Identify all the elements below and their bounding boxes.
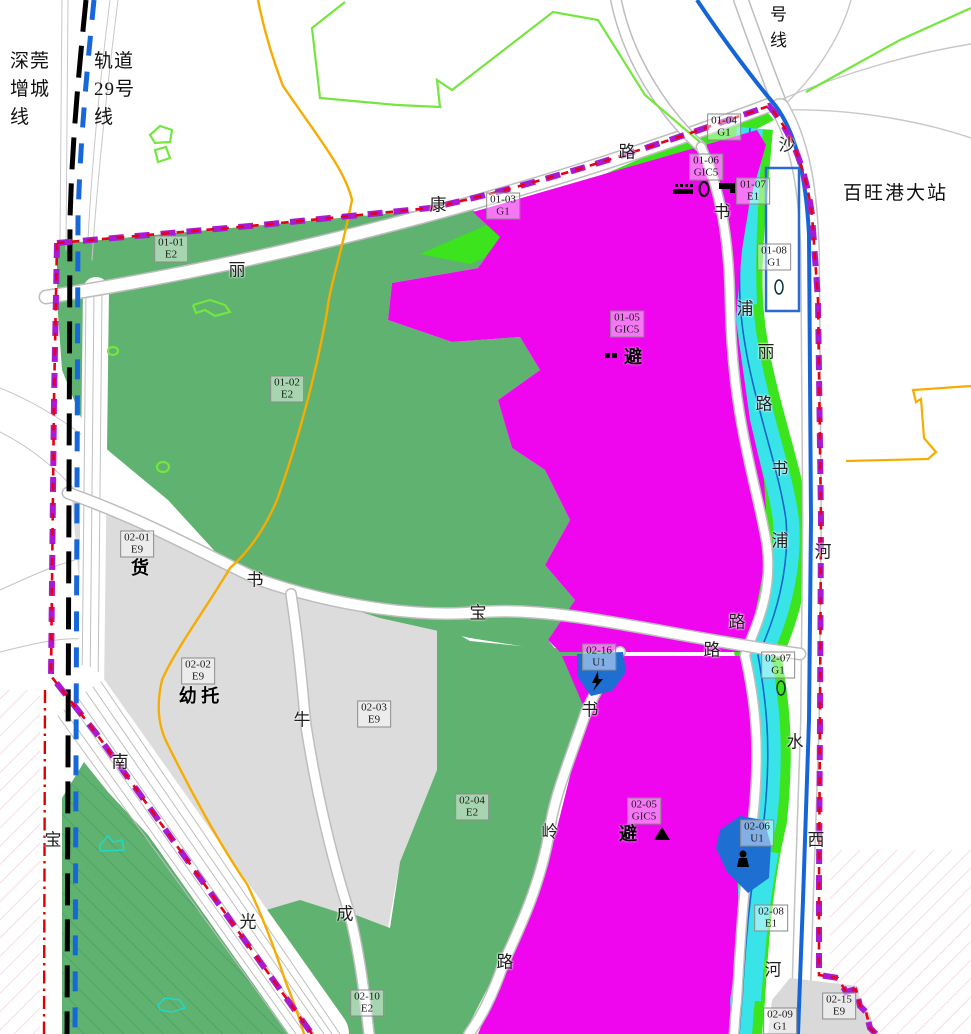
zone-code: 02-01: [124, 533, 150, 545]
zone-code: 02-08: [758, 907, 784, 919]
zone-type: E1: [758, 918, 784, 930]
road-name-character: 路: [756, 390, 773, 415]
road-name-character: 南: [112, 748, 129, 773]
road-name-character: 书: [247, 566, 264, 591]
labels-layer: 01-01E201-02E201-03G101-04G101-05GIC501-…: [0, 0, 971, 1034]
zone-label: 01-07E1: [736, 178, 770, 205]
zone-label: 01-06GIC5: [689, 154, 723, 181]
road-name-character: 丽: [758, 338, 775, 363]
zone-label: 02-16U1: [582, 644, 616, 671]
road-name-character: 浦: [772, 527, 789, 552]
zone-type: U1: [586, 657, 612, 669]
road-name-character: 书: [582, 696, 599, 721]
zone-code: 02-03: [361, 703, 387, 715]
zone-code: 02-06: [744, 822, 770, 834]
road-name-character: 河: [815, 538, 832, 563]
facility-label: 避: [619, 820, 637, 846]
zone-code: 01-02: [274, 378, 300, 390]
road-name-character: 光: [240, 908, 257, 933]
zone-type: U1: [744, 833, 770, 845]
zone-label: 01-08G1: [757, 244, 791, 271]
facility-label: 避: [624, 343, 642, 369]
zone-label: 02-02E9: [181, 658, 215, 685]
road-name-character: 岭: [542, 818, 559, 843]
rail-label-metro-29: 轨道 29号 线: [94, 48, 135, 132]
zone-type: E2: [158, 249, 184, 261]
zone-code: 01-06: [693, 156, 719, 168]
zone-label: 01-04G1: [707, 114, 741, 141]
road-name-character: 路: [497, 948, 514, 973]
zone-type: G1: [711, 127, 737, 139]
road-name-character: 成: [337, 900, 354, 925]
zone-type: E2: [274, 389, 300, 401]
zone-type: E1: [740, 191, 766, 203]
road-name-character: 沙: [779, 131, 796, 156]
road-name-character: 宝: [45, 826, 62, 851]
zone-label: 01-01E2: [154, 236, 188, 263]
zone-code: 01-01: [158, 238, 184, 250]
zone-type: E9: [826, 1006, 852, 1018]
zone-code: 02-04: [459, 796, 485, 808]
zone-type: E2: [354, 1003, 380, 1015]
road-name-character: 书: [772, 455, 789, 480]
road-name-character: 牛: [294, 706, 311, 731]
zone-label: 02-04E2: [455, 794, 489, 821]
road-name-character: 河: [765, 956, 782, 981]
zone-label: 02-15E9: [822, 993, 856, 1020]
zone-type: E2: [459, 807, 485, 819]
rail-label-line-number: 号 线: [770, 2, 787, 54]
road-name-character: 路: [729, 608, 746, 633]
station-name-label: 百旺港大站: [843, 178, 948, 205]
facility-label: 幼 托: [179, 682, 220, 708]
road-name-character: 书: [714, 198, 731, 223]
zone-label: 01-02E2: [270, 376, 304, 403]
road-name-character: 路: [619, 138, 636, 163]
zone-code: 01-07: [740, 180, 766, 192]
road-name-character: 西: [808, 826, 825, 851]
zone-code: 02-16: [586, 646, 612, 658]
zone-type: E9: [185, 671, 211, 683]
zone-type: E9: [361, 714, 387, 726]
zone-code: 01-05: [614, 313, 640, 325]
zone-code: 01-04: [711, 116, 737, 128]
rail-label-shenguan-zengcheng: 深莞 增城 线: [10, 48, 50, 132]
zone-type: G1: [761, 257, 787, 269]
road-name-character: 丽: [229, 256, 246, 281]
zone-code: 01-08: [761, 246, 787, 258]
zone-code: 02-07: [765, 654, 791, 666]
zone-label: 02-09G1: [763, 1008, 797, 1034]
road-name-character: 水: [787, 728, 804, 753]
zone-code: 02-15: [826, 995, 852, 1007]
road-name-character: 宝: [470, 599, 487, 624]
zone-label: 01-05GIC5: [610, 311, 644, 338]
zone-label: 01-03G1: [486, 193, 520, 220]
zone-code: 02-10: [354, 992, 380, 1004]
zone-code: 02-05: [631, 800, 657, 812]
zone-label: 02-08E1: [754, 905, 788, 932]
facility-label: 货: [131, 554, 149, 580]
zone-label: 02-07G1: [761, 652, 795, 679]
zone-type: G1: [767, 1021, 793, 1033]
zone-code: 02-09: [767, 1010, 793, 1022]
zone-label: 02-10E2: [350, 990, 384, 1017]
zone-type: GIC5: [693, 167, 719, 179]
zone-type: G1: [765, 665, 791, 677]
road-name-character: 康: [430, 191, 447, 216]
road-name-character: 浦: [737, 295, 754, 320]
road-name-character: 路: [704, 636, 721, 661]
zone-label: 02-03E9: [357, 701, 391, 728]
zone-type: G1: [490, 206, 516, 218]
zone-code: 01-03: [490, 195, 516, 207]
zone-type: GIC5: [614, 324, 640, 336]
zone-code: 02-02: [185, 660, 211, 672]
zone-label: 02-06U1: [740, 820, 774, 847]
planning-map: 01-01E201-02E201-03G101-04G101-05GIC501-…: [0, 0, 971, 1034]
